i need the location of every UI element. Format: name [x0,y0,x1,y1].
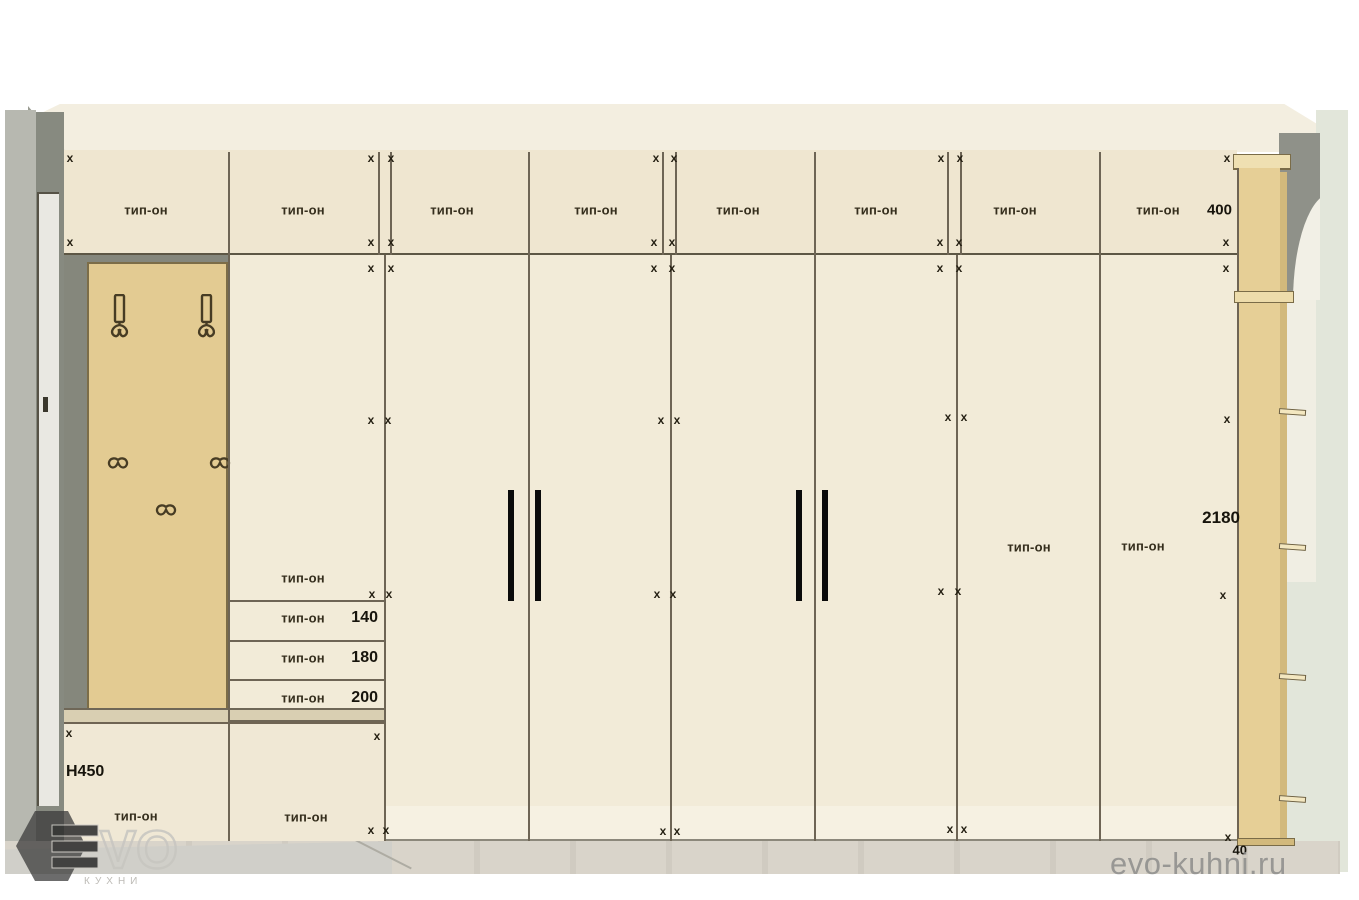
fastener-x-mark: x [961,410,968,424]
cabinet-label: тип-он [281,203,325,218]
fastener-x-mark: x [937,261,944,275]
fastener-x-mark: x [945,410,952,424]
end-unit-side [1280,172,1287,845]
fastener-x-mark: x [651,235,658,249]
dimension-2180: 2180 [1202,508,1240,528]
cabinet-label: тип-он [124,203,168,218]
drawer-divider-line [228,720,384,722]
fastener-x-mark: x [1223,261,1230,275]
fastener-x-mark: x [658,413,665,427]
fastener-x-mark: x [670,587,677,601]
base-label: тип-он [284,810,328,825]
drawer-label: тип-он [281,691,325,706]
fastener-x-mark: x [383,823,390,837]
door-divider-line [956,255,958,841]
dimension-H450: H450 [66,763,104,781]
right-wall-lower-section [1284,582,1316,846]
fastener-x-mark: x [938,584,945,598]
fastener-x-mark: x [374,729,381,743]
door-divider-line [670,255,672,841]
fastener-x-mark: x [386,587,393,601]
plinth-highlight [384,806,1237,841]
cabinet-label: тип-он [574,203,618,218]
fastener-x-mark: x [368,823,375,837]
fastener-x-mark: x [1223,235,1230,249]
drawer-height-dimension: 200 [351,689,378,707]
fastener-x-mark: x [1225,830,1232,844]
door-handle [508,490,514,601]
width-dimension: 400 [1207,202,1232,219]
drawer-divider-line [228,679,384,681]
fastener-x-mark: x [385,413,392,427]
fastener-x-mark: x [369,587,376,601]
fastener-x-mark: x [651,261,658,275]
fastener-x-mark: x [1224,151,1231,165]
wardrobe-design-scene: тип-онтип-онтип-онтип-онтип-онтип-онтип-… [0,0,1359,900]
fastener-x-mark: x [67,235,74,249]
fastener-x-mark: x [669,261,676,275]
drawer-divider-line [228,600,384,602]
fastener-x-mark: x [660,824,667,838]
door-handle [822,490,828,601]
drawer-label: тип-он [281,611,325,626]
right-wall-light-section [1284,300,1316,582]
fastener-x-mark: x [388,261,395,275]
fastener-x-mark: x [937,235,944,249]
fastener-x-mark: x [955,584,962,598]
cabinet-divider-line [1099,152,1101,255]
cabinet-label: тип-он [854,203,898,218]
fastener-x-mark: x [957,151,964,165]
page-margin-top [0,0,1359,104]
door-handle [796,490,802,601]
fastener-x-mark: x [368,261,375,275]
cabinet-label: тип-он [430,203,474,218]
cabinet-divider-line [947,152,949,255]
door-divider-line [814,255,816,841]
cabinet-label: тип-он [993,203,1037,218]
door-divider-line [528,255,530,841]
fastener-x-mark: x [1220,588,1227,602]
fastener-x-mark: x [388,151,395,165]
door-divider-line [384,255,386,841]
room-door [37,192,59,806]
drawer-divider-line [228,640,384,642]
fastener-x-mark: x [368,151,375,165]
cabinet-divider-line [228,152,230,255]
fastener-x-mark: x [669,235,676,249]
fastener-x-mark: x [368,413,375,427]
end-unit-molding [1234,291,1294,303]
wall-above-cabinets [26,104,1330,152]
fastener-x-mark: x [956,261,963,275]
fastener-x-mark: x [654,587,661,601]
cabinet-divider-line [814,152,816,255]
coat-hook-panel [87,262,228,712]
door-handle [535,490,541,601]
door-label: тип-он [1121,539,1165,554]
logo-vo-text: VO [100,820,178,880]
fastener-x-mark: x [674,413,681,427]
drawer-label: тип-он [281,571,325,586]
fastener-x-mark: x [653,151,660,165]
coat-hook-long-icon [192,294,222,340]
fastener-x-mark: x [938,151,945,165]
fastener-x-mark: x [671,151,678,165]
room-door-handle-icon [43,397,48,412]
left-wall-edge [5,110,36,874]
cabinet-divider-line [528,152,530,255]
arch-opening [1293,193,1320,300]
fastener-x-mark: x [956,235,963,249]
fastener-x-mark: x [947,822,954,836]
fastener-x-mark: x [1224,412,1231,426]
door-label: тип-он [1007,540,1051,555]
fastener-x-mark: x [388,235,395,249]
page-margin-right [1348,0,1359,900]
cabinet-label: тип-он [1136,203,1180,218]
fastener-x-mark: x [66,726,73,740]
drawer-height-dimension: 140 [351,609,378,627]
drawer-label: тип-он [281,651,325,666]
coat-hook-small-icon [105,456,131,474]
cabinet-label: тип-он [716,203,760,218]
site-watermark: evo-kuhni.ru [1110,846,1287,882]
end-unit-front [1237,168,1280,845]
fastener-x-mark: x [67,151,74,165]
fastener-x-mark: x [961,822,968,836]
door-divider-line [1099,255,1101,841]
drawer-height-dimension: 180 [351,649,378,667]
logo-sub-text: КУХНИ [84,876,142,887]
coat-hook-long-icon [105,294,135,340]
cabinet-divider-line [378,152,380,255]
cabinet-divider-line [662,152,664,255]
fastener-x-mark: x [674,824,681,838]
page-margin-left [0,0,5,900]
fastener-x-mark: x [368,235,375,249]
right-wall [1316,110,1348,872]
door-divider-line [228,255,230,841]
evo-logo-watermark: VO КУХНИ [10,804,180,896]
coat-hook-small-icon [153,503,179,521]
logo-letter-e-icon [52,825,98,868]
